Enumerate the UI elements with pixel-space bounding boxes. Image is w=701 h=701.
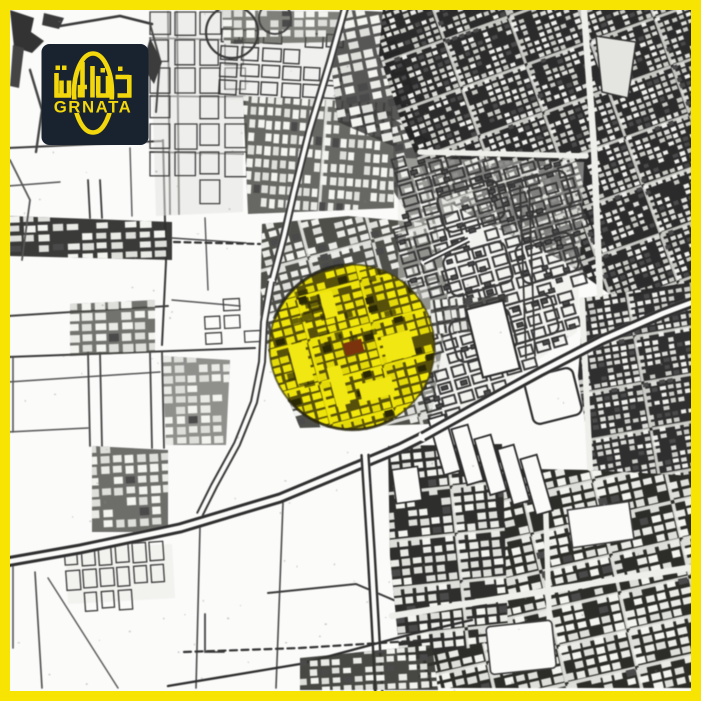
svg-text:GRNATA: GRNATA — [54, 97, 133, 116]
